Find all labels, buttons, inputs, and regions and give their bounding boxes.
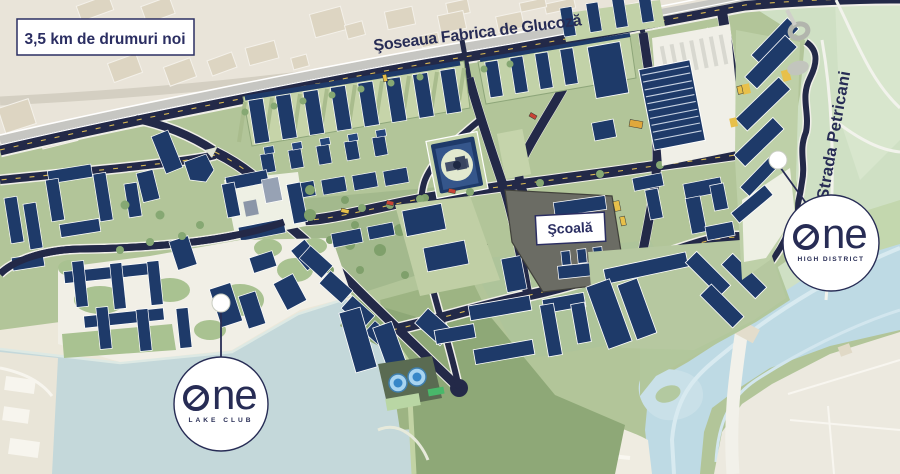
svg-text:3,5 km de drumuri noi: 3,5 km de drumuri noi [24, 31, 185, 48]
svg-text:LAKE CLUB: LAKE CLUB [188, 417, 253, 424]
svg-text:Şcoală: Şcoală [547, 219, 593, 237]
svg-text:ne: ne [822, 210, 867, 257]
svg-text:HIGH DISTRICT: HIGH DISTRICT [798, 256, 865, 263]
svg-text:ne: ne [212, 371, 257, 418]
